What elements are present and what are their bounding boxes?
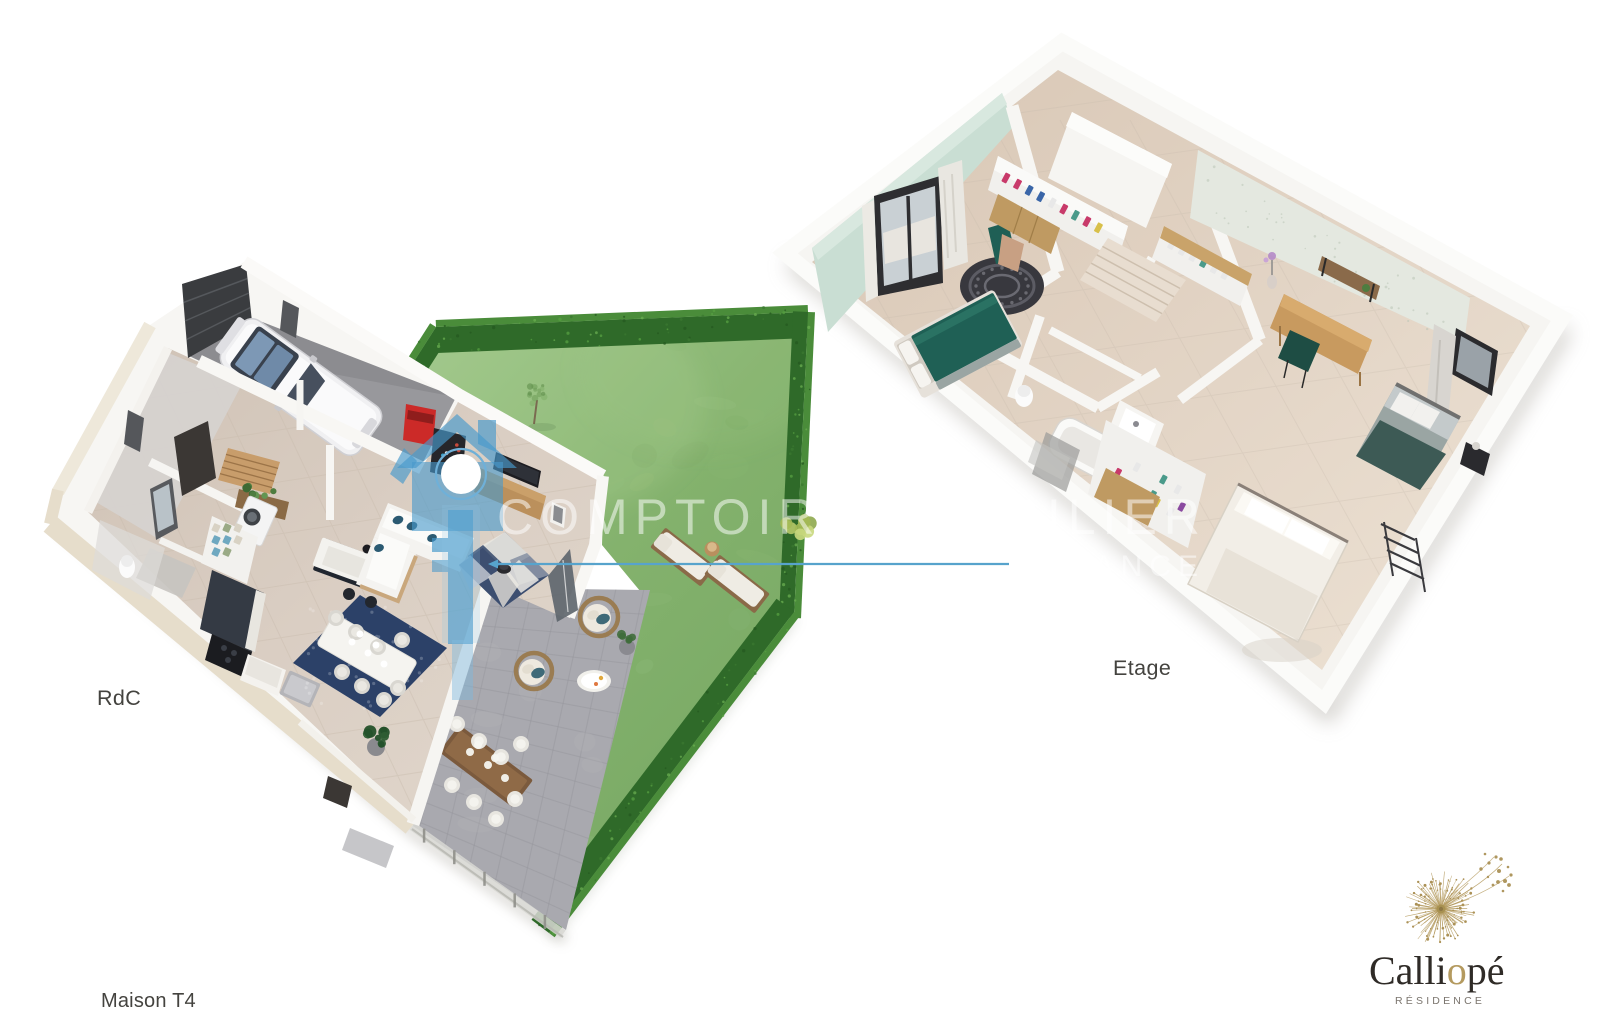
svg-text:FRANCE: FRANCE <box>1040 550 1205 583</box>
svg-text:Etage: Etage <box>1113 656 1171 680</box>
svg-text:COMPTOIR IMMOBILIER: COMPTOIR IMMOBILIER <box>497 489 1207 545</box>
svg-text:Maison T4: Maison T4 <box>101 990 196 1012</box>
svg-text:RdC: RdC <box>97 686 141 710</box>
svg-text:Calliopé: Calliopé <box>1369 948 1505 993</box>
svg-text:RÉSIDENCE: RÉSIDENCE <box>1395 994 1485 1007</box>
